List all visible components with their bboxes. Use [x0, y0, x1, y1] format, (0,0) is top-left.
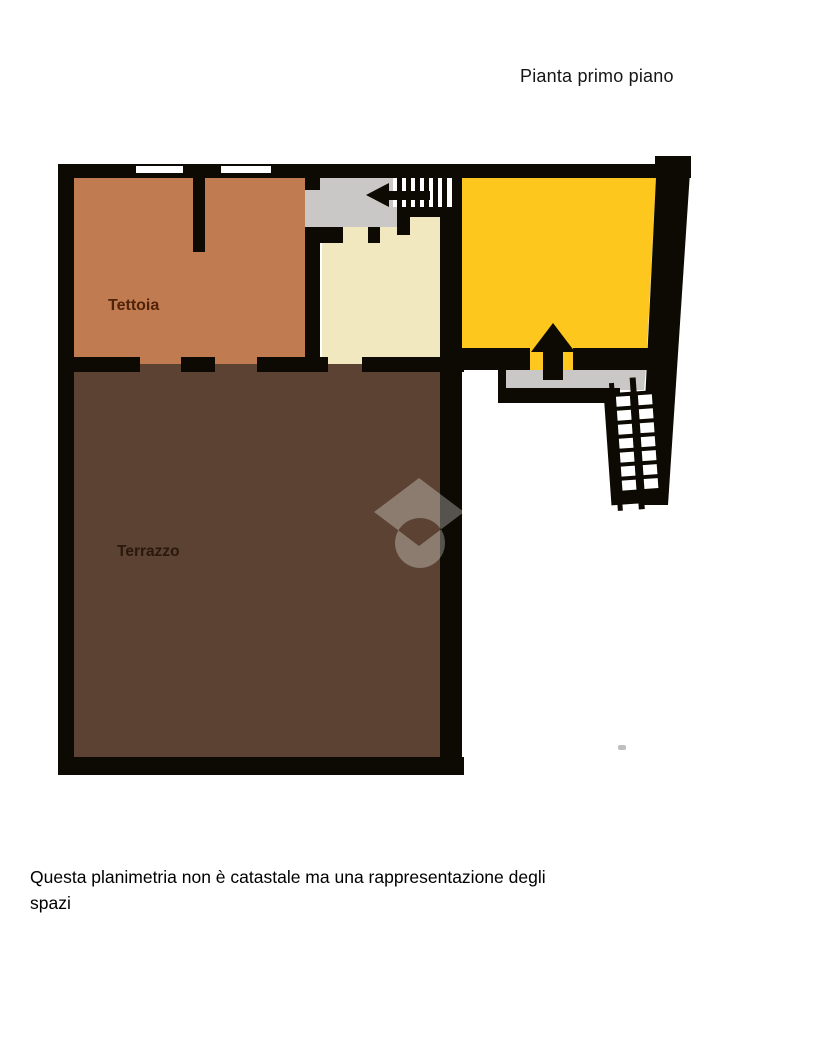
room-label-tettoia: Tettoia: [108, 297, 159, 314]
wall-inner-right: [440, 164, 462, 775]
stair-landing-right: [505, 368, 646, 390]
wall-left: [58, 164, 74, 775]
stray-speck: [618, 745, 626, 750]
room-label-terrazzo: Terrazzo: [117, 543, 180, 560]
disclaimer-line-1: Questa planimetria non è catastale ma un…: [30, 864, 546, 890]
room-terrazzo: [74, 364, 440, 757]
window-icon: [221, 166, 271, 173]
window-icon: [136, 166, 183, 173]
wall-bottom: [58, 757, 464, 775]
rooms: [74, 178, 656, 757]
disclaimer-text: Questa planimetria non è catastale ma un…: [30, 864, 546, 916]
room-tettoia: [74, 178, 305, 364]
floorplan-page: Pianta primo piano: [0, 0, 839, 1050]
stairs-down-icon: [603, 376, 664, 511]
door-tettoia-landing: [305, 190, 320, 227]
wall-right-landing-bottom: [498, 388, 620, 403]
wall-tettoia-stub: [193, 178, 205, 252]
disclaimer-line-2: spazi: [30, 890, 546, 916]
room-yellow: [460, 178, 656, 350]
